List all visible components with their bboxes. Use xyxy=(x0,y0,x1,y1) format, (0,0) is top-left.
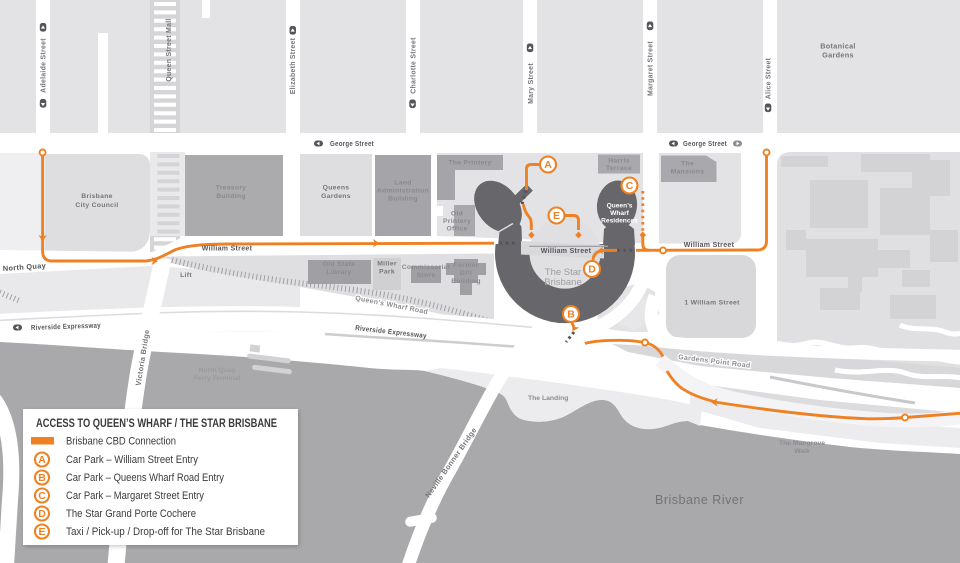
svg-text:Old: Old xyxy=(451,211,463,218)
svg-text:Printery: Printery xyxy=(443,218,471,225)
svg-text:Charlotte Street: Charlotte Street xyxy=(411,37,418,94)
svg-text:Brisbane CBD Connection: Brisbane CBD Connection xyxy=(66,436,176,448)
svg-text:Queen’s: Queen’s xyxy=(607,203,633,210)
svg-text:Administration: Administration xyxy=(377,188,429,195)
svg-text:Ferry Terminal: Ferry Terminal xyxy=(194,375,241,382)
svg-text:Margaret Street: Margaret Street xyxy=(648,41,655,96)
svg-text:Gardens: Gardens xyxy=(321,193,351,200)
svg-text:A: A xyxy=(544,159,552,171)
svg-text:Car Park – Queens Wharf Road E: Car Park – Queens Wharf Road Entry xyxy=(66,472,225,484)
svg-text:The Mangrove: The Mangrove xyxy=(779,440,825,447)
svg-text:Queens: Queens xyxy=(323,185,350,192)
svg-text:Treasury: Treasury xyxy=(216,185,247,192)
svg-text:Gardens: Gardens xyxy=(822,51,854,60)
svg-text:The Star Grand Porte Cochere: The Star Grand Porte Cochere xyxy=(66,508,196,520)
svg-text:Library: Library xyxy=(326,269,351,276)
svg-text:E: E xyxy=(553,210,560,222)
svg-text:Taxi / Pick-up / Drop-off for: Taxi / Pick-up / Drop-off for The Star B… xyxy=(66,526,265,538)
svg-text:D: D xyxy=(588,264,596,276)
svg-text:Store: Store xyxy=(417,272,436,279)
svg-text:C: C xyxy=(38,490,46,502)
svg-text:The Landing: The Landing xyxy=(528,395,568,402)
svg-text:Alice Street: Alice Street xyxy=(766,57,773,99)
svg-text:D: D xyxy=(38,508,46,520)
svg-text:Walk: Walk xyxy=(794,448,810,455)
svg-text:William Street: William Street xyxy=(202,246,253,253)
svg-text:DPI: DPI xyxy=(460,270,472,277)
svg-text:Former: Former xyxy=(453,262,478,269)
svg-text:Commissariat: Commissariat xyxy=(402,264,451,271)
svg-text:A: A xyxy=(38,454,46,466)
svg-text:Mary Street: Mary Street xyxy=(528,63,535,104)
svg-text:ACCESS TO QUEEN’S WHARF / THE: ACCESS TO QUEEN’S WHARF / THE STAR BRISB… xyxy=(36,416,277,430)
svg-text:B: B xyxy=(567,309,575,321)
svg-text:Land: Land xyxy=(394,180,411,187)
svg-text:Old State: Old State xyxy=(323,261,356,268)
svg-text:Lift: Lift xyxy=(180,272,192,279)
svg-text:George Street: George Street xyxy=(683,141,727,148)
svg-text:Miller: Miller xyxy=(377,261,397,268)
svg-text:The: The xyxy=(681,161,694,168)
svg-text:Brisbane: Brisbane xyxy=(544,277,582,288)
svg-text:Queen Street Mall: Queen Street Mall xyxy=(166,18,173,81)
svg-text:1 William Street: 1 William Street xyxy=(684,300,740,307)
svg-text:Residences: Residences xyxy=(601,218,638,225)
svg-text:George Street: George Street xyxy=(330,141,374,148)
svg-text:C: C xyxy=(626,180,634,192)
svg-text:Botanical: Botanical xyxy=(820,42,856,51)
svg-text:City Council: City Council xyxy=(75,202,118,209)
svg-text:Car Park – Margaret Street Ent: Car Park – Margaret Street Entry xyxy=(66,490,205,502)
svg-text:B: B xyxy=(38,472,46,484)
svg-text:Terrace: Terrace xyxy=(606,165,632,172)
svg-text:Harris: Harris xyxy=(608,158,629,165)
svg-text:Office: Office xyxy=(446,226,467,233)
svg-text:William Street: William Street xyxy=(541,248,592,255)
svg-text:Park: Park xyxy=(379,269,395,276)
svg-text:The Printery: The Printery xyxy=(448,160,491,167)
svg-text:Building: Building xyxy=(388,196,418,203)
svg-text:Mansions: Mansions xyxy=(671,169,705,176)
svg-text:William Street: William Street xyxy=(684,242,735,249)
svg-text:Wharf: Wharf xyxy=(610,210,629,217)
svg-text:Brisbane: Brisbane xyxy=(81,193,113,200)
svg-text:Elizabeth Street: Elizabeth Street xyxy=(290,37,297,94)
svg-text:North Quay: North Quay xyxy=(198,367,235,374)
svg-text:Car Park – William Street Entr: Car Park – William Street Entry xyxy=(66,454,199,466)
svg-text:Building: Building xyxy=(216,193,246,200)
svg-text:Adelaide Street: Adelaide Street xyxy=(41,38,48,93)
svg-text:E: E xyxy=(38,526,45,538)
svg-text:Brisbane River: Brisbane River xyxy=(655,493,744,507)
svg-text:Building: Building xyxy=(451,278,481,285)
